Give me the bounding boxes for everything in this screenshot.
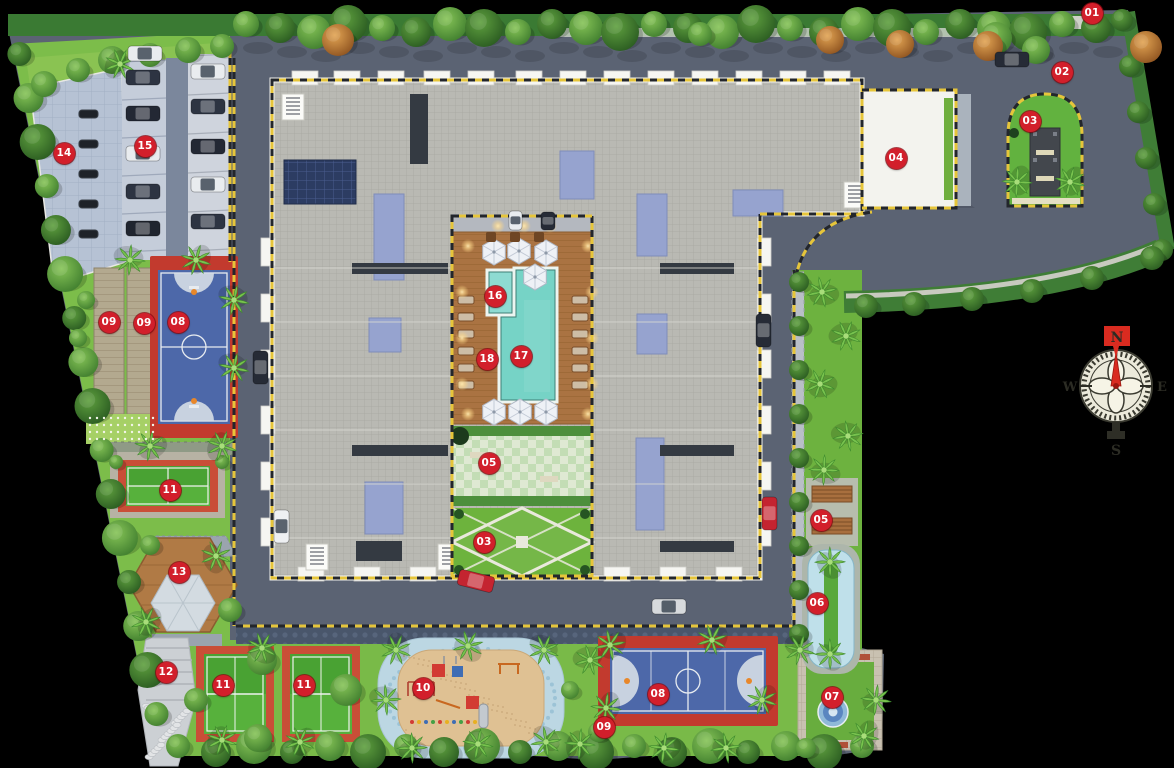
flower-speck xyxy=(117,438,119,440)
toy-dot xyxy=(431,720,435,724)
plan-marker-14[interactable]: 14 xyxy=(54,143,75,164)
flower-speck xyxy=(138,431,140,433)
tree-icon xyxy=(841,7,879,41)
sand-grain xyxy=(459,687,461,689)
sand-grain xyxy=(427,665,429,667)
balcony-bump xyxy=(292,71,318,85)
sand-grain xyxy=(492,704,494,706)
roof-gap xyxy=(660,445,734,456)
site-plan-stage: N W E S 01020304141509090816181705031113… xyxy=(0,0,1174,768)
flower-speck xyxy=(96,417,98,419)
deck-table xyxy=(534,232,544,242)
compass-south-label: S xyxy=(1111,443,1121,459)
deck-light-icon xyxy=(455,285,469,299)
balcony-bump xyxy=(692,71,718,85)
flower-speck xyxy=(138,424,140,426)
sand-grain xyxy=(506,712,508,714)
roof-shade-panel xyxy=(637,194,667,256)
plan-marker-05[interactable]: 05 xyxy=(811,510,832,531)
car xyxy=(756,314,771,347)
deck-table xyxy=(486,232,496,242)
lounger xyxy=(572,364,588,372)
deck-light-icon xyxy=(461,407,475,421)
flower-speck xyxy=(96,424,98,426)
car xyxy=(191,99,225,114)
car xyxy=(274,510,289,543)
plan-marker-09[interactable]: 09 xyxy=(134,313,155,334)
flower-speck xyxy=(96,438,98,440)
motorbike xyxy=(79,140,98,148)
sand-grain xyxy=(417,663,419,665)
parking-aisle xyxy=(166,58,188,260)
pebble xyxy=(553,696,557,700)
flower-speck xyxy=(131,417,133,419)
flower-speck xyxy=(124,438,126,440)
flower-speck xyxy=(124,431,126,433)
roof-shade-panel xyxy=(369,318,401,352)
car xyxy=(191,139,225,154)
pebble xyxy=(546,716,550,720)
balcony-bump xyxy=(780,71,806,85)
flower-speck xyxy=(96,431,98,433)
sand-grain xyxy=(428,660,430,662)
deck-light-icon xyxy=(461,239,475,253)
motorbike xyxy=(79,200,98,208)
flower-speck xyxy=(103,417,105,419)
sand-grain xyxy=(514,724,516,726)
flower-speck xyxy=(110,438,112,440)
pebble xyxy=(546,676,550,680)
sand-grain xyxy=(525,721,527,723)
tree-shadow xyxy=(923,50,953,62)
balcony-bump xyxy=(468,71,494,85)
flower-speck xyxy=(110,424,112,426)
basketball-court-left xyxy=(150,256,238,438)
compass-west-label: W xyxy=(1062,380,1078,395)
sand-grain xyxy=(454,686,456,688)
sand-grain xyxy=(488,698,490,700)
motorbike xyxy=(79,230,98,238)
plan-marker-10[interactable]: 10 xyxy=(413,678,434,699)
balcony-bump xyxy=(604,71,630,85)
flower-speck xyxy=(152,431,154,433)
pebble xyxy=(552,689,556,693)
tree-shadow xyxy=(277,46,307,58)
sand-grain xyxy=(501,711,503,713)
flower-speck xyxy=(124,424,126,426)
car xyxy=(126,221,160,236)
car xyxy=(762,497,777,530)
roof-gap xyxy=(352,445,448,456)
sand-grain xyxy=(445,679,447,681)
plan-marker-06[interactable]: 06 xyxy=(807,593,828,614)
plan-marker-01[interactable]: 01 xyxy=(1082,3,1103,24)
flower-speck xyxy=(152,424,154,426)
motorbike xyxy=(79,170,98,178)
sand-grain xyxy=(413,657,415,659)
balcony-bump xyxy=(824,71,850,85)
car xyxy=(126,70,160,85)
plan-marker-02[interactable]: 02 xyxy=(1052,62,1073,83)
flower-speck xyxy=(117,417,119,419)
plan-marker-04[interactable]: 04 xyxy=(886,148,907,169)
plan-marker-09[interactable]: 09 xyxy=(594,717,615,738)
pebble xyxy=(552,703,556,707)
tree-shadow xyxy=(515,50,545,62)
sand-grain xyxy=(474,690,476,692)
sand-grain xyxy=(405,729,407,731)
car xyxy=(995,52,1029,67)
tree-shadow xyxy=(651,42,681,54)
sand-grain xyxy=(455,681,457,683)
plan-marker-03[interactable]: 03 xyxy=(474,532,495,553)
flower-speck xyxy=(117,424,119,426)
flower-speck xyxy=(103,431,105,433)
balcony-bump xyxy=(334,71,360,85)
sand-grain xyxy=(450,680,452,682)
toy-dot xyxy=(424,720,428,724)
toy-dot xyxy=(417,720,421,724)
ac-vent xyxy=(306,544,328,570)
toy-dot xyxy=(410,720,414,724)
garden-court-05 xyxy=(451,426,592,506)
toy-dot xyxy=(438,720,442,724)
flower-speck xyxy=(89,438,91,440)
deck-light-icon xyxy=(455,377,469,391)
plan-marker-17[interactable]: 17 xyxy=(511,346,532,367)
pebble xyxy=(550,683,554,687)
sand-grain xyxy=(497,705,499,707)
sand-grain xyxy=(529,727,531,729)
tree-icon xyxy=(1130,31,1166,63)
car xyxy=(191,214,225,229)
plan-marker-12[interactable]: 12 xyxy=(156,662,177,683)
tree-shadow xyxy=(1093,46,1123,58)
flower-speck xyxy=(145,438,147,440)
tree-shadow xyxy=(753,42,783,54)
sand-grain xyxy=(505,717,507,719)
flower-speck xyxy=(124,417,126,419)
flower-speck xyxy=(152,417,154,419)
sand-grain xyxy=(510,718,512,720)
sand-grain xyxy=(468,694,470,696)
tree-shadow xyxy=(719,50,749,62)
sand-grain xyxy=(511,713,513,715)
basketball-court-bottom xyxy=(598,636,778,726)
sand-grain xyxy=(446,674,448,676)
roof-gap xyxy=(410,94,428,164)
flower-speck xyxy=(138,417,140,419)
sand-grain xyxy=(524,726,526,728)
tree-shadow xyxy=(1059,42,1089,54)
flower-speck xyxy=(145,431,147,433)
flower-speck xyxy=(145,417,147,419)
sand-grain xyxy=(440,678,442,680)
sand-grain xyxy=(515,719,517,721)
sand-grain xyxy=(408,656,410,658)
pebble xyxy=(392,676,396,680)
sand-grain xyxy=(496,710,498,712)
tree-shadow xyxy=(413,50,443,62)
sand-grain xyxy=(422,664,424,666)
plan-marker-15[interactable]: 15 xyxy=(135,136,156,157)
flower-speck xyxy=(152,438,154,440)
pebble xyxy=(388,709,392,713)
motorbike xyxy=(79,110,98,118)
lounger xyxy=(458,364,474,372)
sand-grain xyxy=(465,683,467,685)
plan-marker-08[interactable]: 08 xyxy=(648,684,669,705)
tree-shadow xyxy=(685,46,715,58)
flower-speck xyxy=(89,417,91,419)
deck-light-icon xyxy=(455,331,469,345)
stone xyxy=(157,742,165,747)
pebble xyxy=(550,709,554,713)
balcony-bump xyxy=(560,71,586,85)
sand-grain xyxy=(469,689,471,691)
sand-grain xyxy=(460,682,462,684)
sand-grain xyxy=(519,725,521,727)
roof-shade-panel xyxy=(733,190,783,216)
balcony-bump xyxy=(736,71,762,85)
lounger xyxy=(572,347,588,355)
car xyxy=(253,351,268,384)
balcony-bump xyxy=(516,71,542,85)
sand-grain xyxy=(464,688,466,690)
plan-marker-18[interactable]: 18 xyxy=(477,349,498,370)
car xyxy=(541,212,555,230)
roof-shade-panel xyxy=(637,314,667,354)
flower-speck xyxy=(110,431,112,433)
tree-shadow xyxy=(787,46,817,58)
plan-marker-11[interactable]: 11 xyxy=(294,675,315,696)
sand-grain xyxy=(483,697,485,699)
car xyxy=(126,184,160,199)
flower-speck xyxy=(89,424,91,426)
pebble xyxy=(388,683,392,687)
sand-grain xyxy=(528,732,530,734)
lounger xyxy=(572,313,588,321)
plan-marker-13[interactable]: 13 xyxy=(169,562,190,583)
tree-shadow xyxy=(481,46,511,58)
plan-marker-16[interactable]: 16 xyxy=(485,286,506,307)
plan-marker-08[interactable]: 08 xyxy=(168,312,189,333)
tree-icon xyxy=(433,7,471,41)
plan-marker-11[interactable]: 11 xyxy=(213,675,234,696)
compass-north-label: N xyxy=(1111,330,1124,346)
roof-shade-panel xyxy=(365,482,403,534)
plan-marker-11[interactable]: 11 xyxy=(160,480,181,501)
lounger xyxy=(572,296,588,304)
flower-speck xyxy=(131,438,133,440)
car xyxy=(652,599,686,614)
car xyxy=(128,46,162,61)
sand-grain xyxy=(502,706,504,708)
tree-shadow xyxy=(243,42,273,54)
pebble xyxy=(392,716,396,720)
deck-light-icon xyxy=(491,219,505,233)
sand-grain xyxy=(423,659,425,661)
balcony-bump xyxy=(648,71,674,85)
roof-gap xyxy=(356,541,402,561)
lounger xyxy=(458,313,474,321)
sand-grain xyxy=(418,658,420,660)
roof-shade-panel xyxy=(560,151,594,199)
plan-marker-09[interactable]: 09 xyxy=(99,312,120,333)
flower-speck xyxy=(117,431,119,433)
flower-speck xyxy=(89,431,91,433)
pool-courtyard xyxy=(452,214,599,425)
tree-shadow xyxy=(447,42,477,54)
balcony-bump xyxy=(378,71,404,85)
sand-grain xyxy=(491,709,493,711)
flower-speck xyxy=(103,438,105,440)
car xyxy=(191,64,225,79)
toy-dot xyxy=(452,720,456,724)
tree-shadow xyxy=(855,42,885,54)
tree-icon xyxy=(737,5,779,43)
solar-panels xyxy=(284,160,356,204)
plan-marker-03[interactable]: 03 xyxy=(1020,111,1041,132)
sand-grain xyxy=(487,703,489,705)
lounger xyxy=(458,347,474,355)
toy-dot xyxy=(459,720,463,724)
balcony-bump xyxy=(424,71,450,85)
compass-east-label: E xyxy=(1157,380,1167,395)
compass: N W E S xyxy=(1062,326,1167,459)
flower-speck xyxy=(138,438,140,440)
site-plan-graphic: N W E S xyxy=(0,0,1174,768)
tree-shadow xyxy=(379,46,409,58)
tree-icon xyxy=(537,9,571,39)
flower-speck xyxy=(103,424,105,426)
tree-shadow xyxy=(583,46,613,58)
car xyxy=(126,106,160,121)
tree-shadow xyxy=(549,42,579,54)
deck-table xyxy=(510,232,520,242)
car xyxy=(509,211,522,230)
car xyxy=(191,177,225,192)
flower-speck xyxy=(131,424,133,426)
toy-dot xyxy=(445,720,449,724)
flower-speck xyxy=(145,424,147,426)
ac-vent xyxy=(282,94,304,120)
flower-speck xyxy=(110,417,112,419)
roof-gap xyxy=(660,541,734,552)
plan-marker-07[interactable]: 07 xyxy=(822,687,843,708)
toy-dot xyxy=(466,720,470,724)
flower-speck xyxy=(131,431,133,433)
stone xyxy=(173,722,181,727)
plan-marker-05[interactable]: 05 xyxy=(479,453,500,474)
tree-shadow xyxy=(617,50,647,62)
toy-dot xyxy=(473,720,477,724)
sand-grain xyxy=(520,720,522,722)
